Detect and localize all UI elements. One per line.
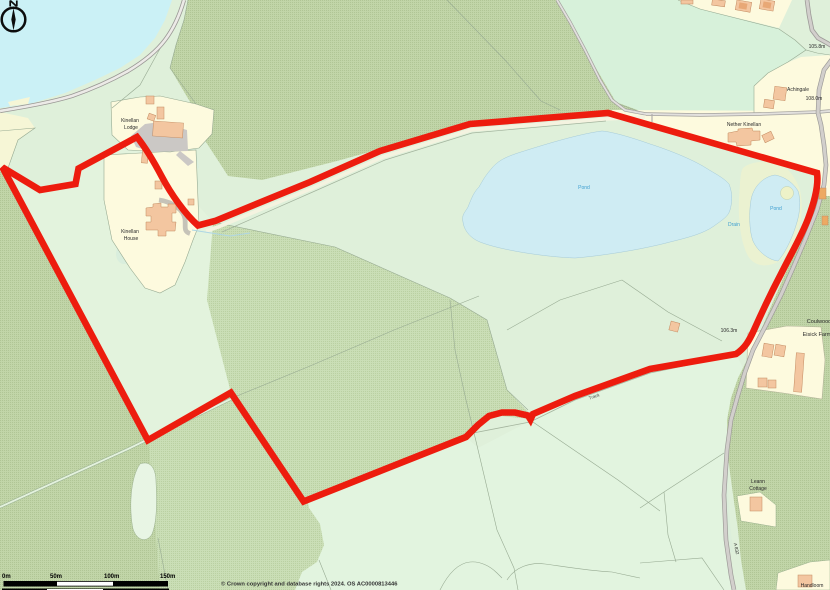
svg-text:Drain: Drain — [728, 222, 740, 228]
svg-text:Pond: Pond — [578, 185, 590, 191]
svg-text:© Crown copyright and database: © Crown copyright and database rights 20… — [221, 581, 398, 588]
svg-text:150m: 150m — [160, 574, 175, 580]
svg-text:Handloom: Handloom — [801, 583, 824, 589]
svg-text:106.3m: 106.3m — [721, 328, 738, 334]
svg-text:105.8m: 105.8m — [809, 44, 826, 50]
svg-text:Pond: Pond — [770, 206, 782, 212]
svg-text:108.0m: 108.0m — [806, 96, 823, 102]
svg-text:50m: 50m — [50, 574, 62, 580]
svg-text:100m: 100m — [104, 574, 119, 580]
svg-text:Kinellan: Kinellan — [121, 229, 139, 235]
svg-text:Leann: Leann — [751, 479, 765, 485]
svg-text:Achingale: Achingale — [787, 87, 809, 93]
svg-text:House: House — [124, 236, 139, 242]
svg-text:Coulwood: Coulwood — [807, 319, 830, 325]
svg-text:0m: 0m — [2, 574, 11, 580]
svg-text:Cottage: Cottage — [749, 486, 767, 492]
svg-text:Lodge: Lodge — [124, 125, 138, 131]
svg-text:Kinellan: Kinellan — [121, 118, 139, 124]
svg-text:Eisick Farm: Eisick Farm — [803, 332, 830, 338]
svg-text:Nether Kinellan: Nether Kinellan — [727, 122, 761, 128]
